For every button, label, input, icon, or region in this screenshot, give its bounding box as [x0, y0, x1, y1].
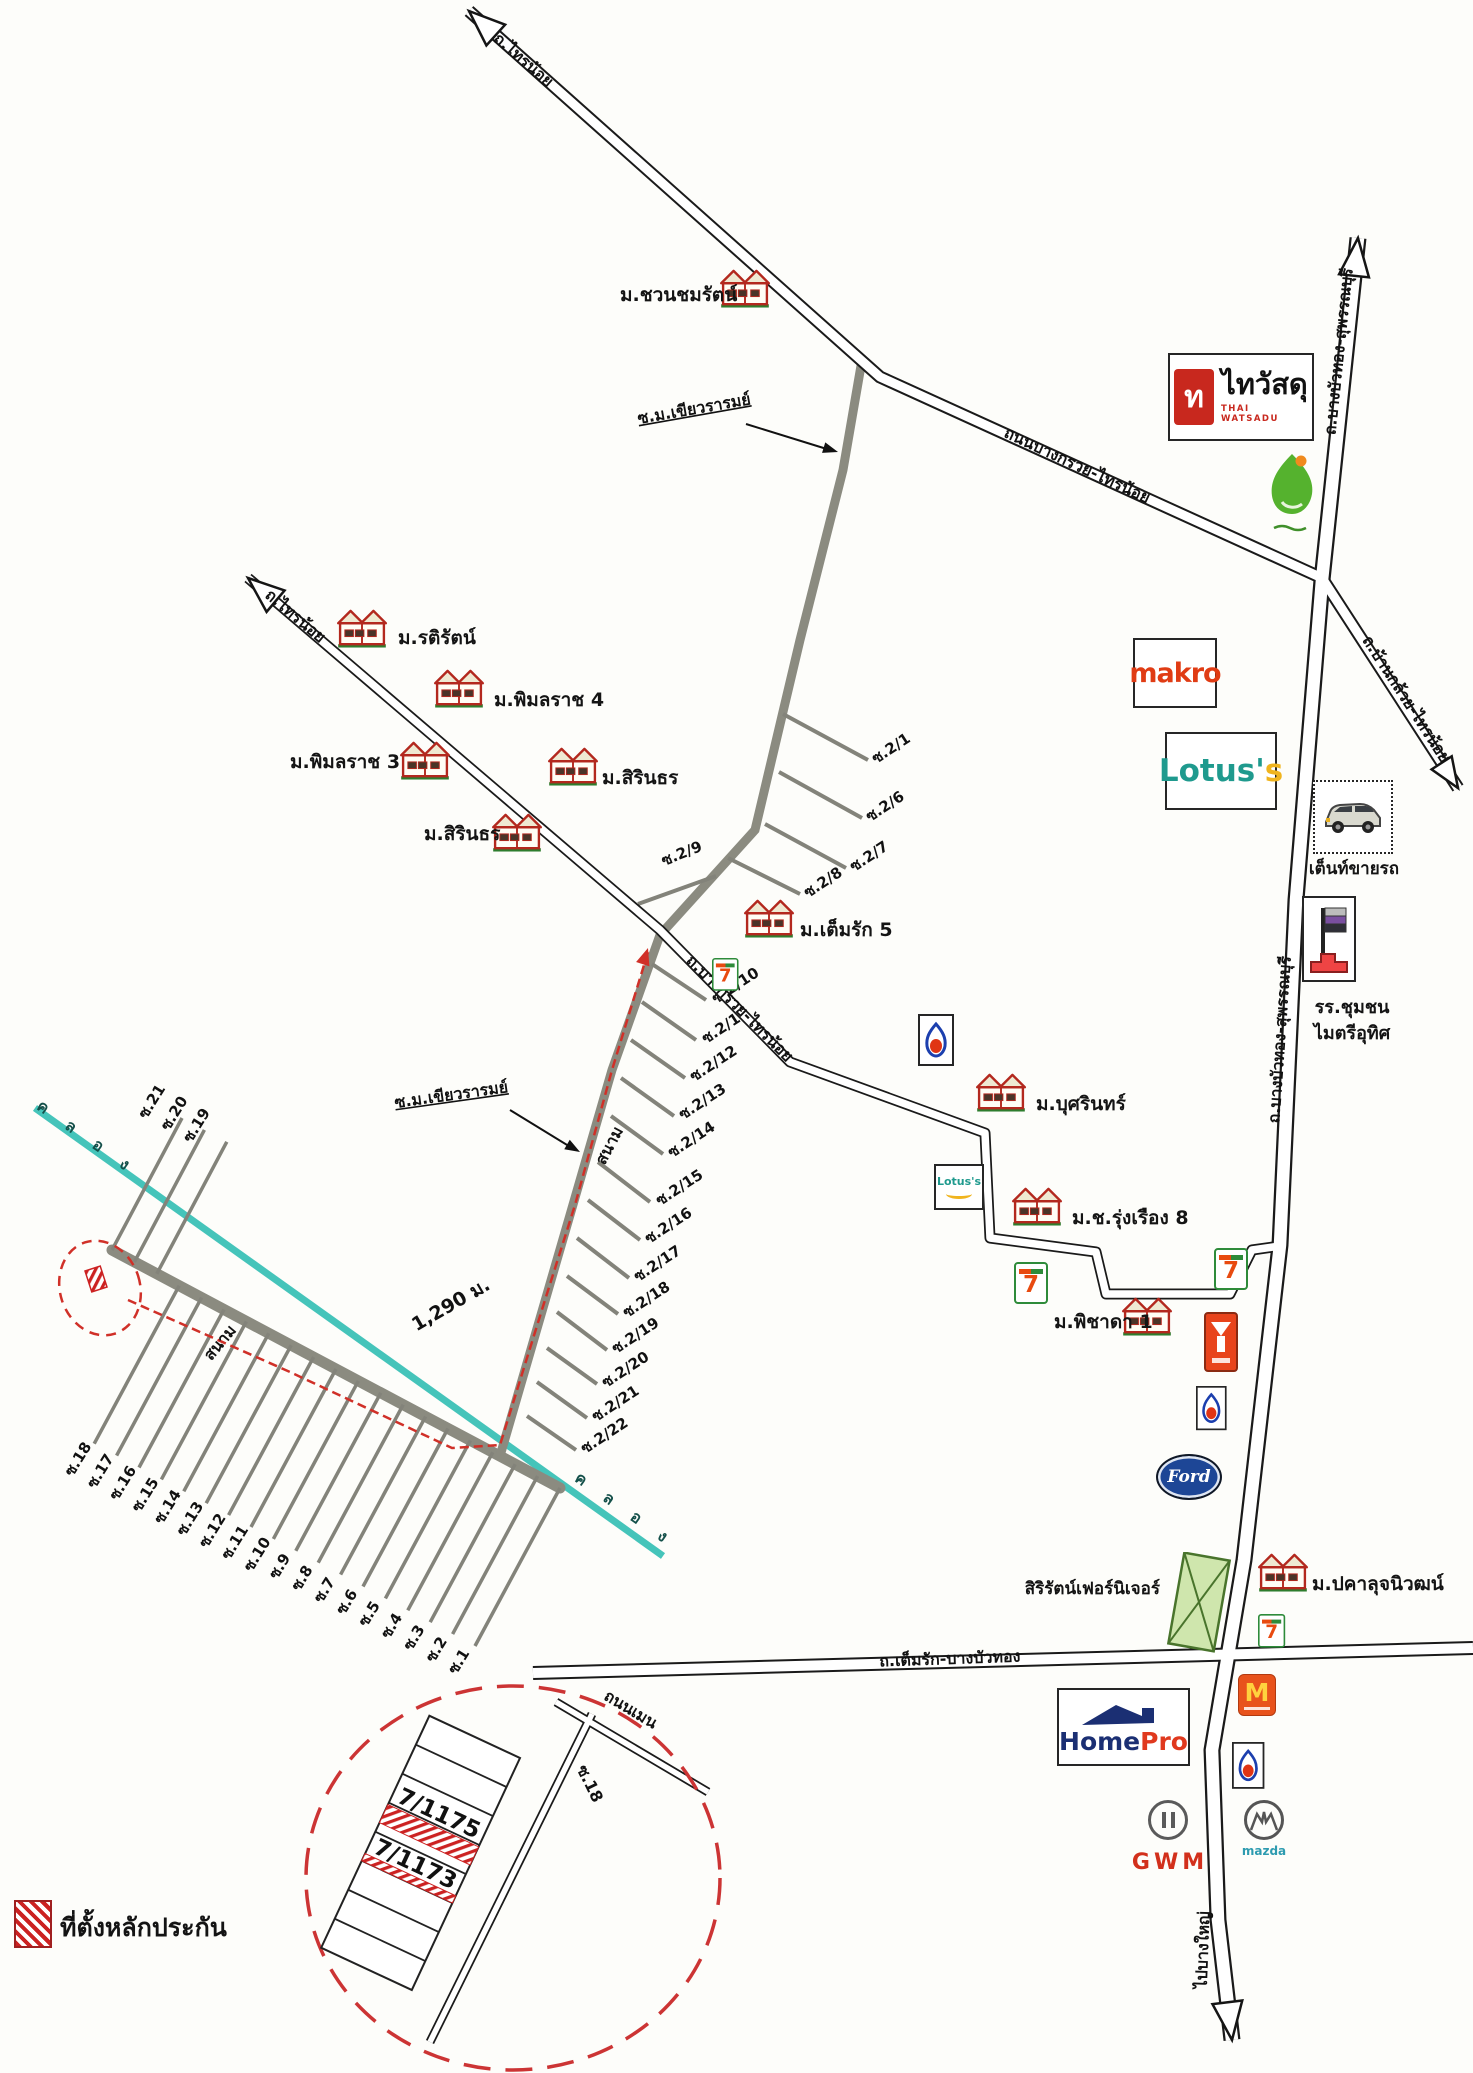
thai-watsadu-en-label: THAI WATSADU	[1221, 404, 1308, 424]
village-label: ม.รติรัตน์	[398, 628, 476, 650]
soi-label: ซ.2/16	[641, 1204, 695, 1248]
soi-label: ซ.2/1	[868, 729, 913, 767]
canal-label-2: ค ล อ ง	[572, 1468, 679, 1551]
soi-label: ซ.2/15	[652, 1166, 706, 1210]
soi-label: ซ.3	[399, 1622, 428, 1654]
soi-line	[642, 1002, 696, 1040]
school-label-line2: ไมตรีอุทิศ	[1296, 1024, 1408, 1045]
lotus-label-accent: s	[1265, 753, 1283, 789]
soi-label: ซ.9	[265, 1550, 294, 1582]
soi-label: ซ.2/13	[675, 1080, 729, 1124]
soi-label: ซ.2/18	[619, 1278, 673, 1322]
ptt-station-icon	[1232, 1742, 1264, 1789]
village-label: ม.เต็มรัก 5	[800, 920, 893, 942]
thai-watsadu-icon: ท	[1174, 369, 1214, 425]
village-label: ม.สิรินธร	[424, 824, 500, 846]
collateral-plot-icon	[85, 1266, 107, 1292]
gwm-label: GWM	[1128, 1850, 1212, 1875]
seven-eleven-icon: 7	[712, 958, 739, 991]
soi-label: ซ.8	[287, 1562, 316, 1594]
soi-label: ซ.2/9	[659, 837, 705, 870]
seven-eleven-number: 7	[1223, 1260, 1239, 1283]
soi-lines	[94, 714, 868, 1646]
village-house-icon	[549, 749, 597, 786]
map-stage: ซ.2/1ซ.2/6ซ.2/7ซ.2/8ซ.2/9ซ.2/10ซ.2/11ซ.2…	[0, 0, 1473, 2073]
soi-line	[577, 1238, 629, 1278]
mazda-emblem-icon	[1244, 1800, 1284, 1840]
village-house-icon	[435, 671, 483, 708]
soi-line	[547, 1348, 597, 1384]
soi-label: ซ.2/20	[598, 1348, 652, 1392]
makro-logo: makro	[1133, 638, 1217, 708]
school-box	[1302, 896, 1356, 982]
soi-label: ซ.2/6	[862, 787, 907, 825]
seven-eleven-number: 7	[1023, 1274, 1039, 1297]
school-flag-icon	[1308, 902, 1350, 976]
village-house-icon	[1013, 1189, 1061, 1226]
soi-label: ซ.2/12	[686, 1042, 740, 1086]
road-label-bangkruai-sainoi: ถนนบางกรวย-ไทรน้อย	[1001, 423, 1153, 507]
village-house-icon	[338, 611, 386, 648]
legend-hatch-swatch	[14, 1900, 52, 1948]
thai-watsadu-thai-label: ไทวัสดุ	[1221, 370, 1308, 399]
soi-line	[134, 1130, 204, 1262]
homepro-label-pro: Pro	[1140, 1727, 1188, 1756]
soi-label: ซ.2/7	[846, 837, 891, 875]
lotus-logo: Lotus's	[1165, 732, 1277, 810]
car-dealer-box	[1313, 780, 1393, 854]
homepro-roof-icon	[1072, 1701, 1176, 1727]
village-label: ม.สิรินธร	[602, 768, 678, 790]
soi-label: ซ.2/8	[800, 863, 845, 901]
village-label: ม.พิมลราช 4	[494, 690, 604, 712]
soi-label: ซ.2	[422, 1634, 451, 1666]
road-label-bankluai: ถ.บ้านกล้วย-ไทรน้อย	[1358, 632, 1454, 766]
soi-line	[112, 1118, 182, 1250]
village-house-icon	[1259, 1555, 1307, 1592]
ford-logo: Ford	[1156, 1454, 1222, 1500]
seven-eleven-number: 7	[719, 967, 731, 985]
soi-label: ซ.2/19	[608, 1314, 662, 1358]
soi-label: ซ.5	[355, 1598, 384, 1630]
soi-line	[728, 858, 800, 894]
village-label: ม.พิชาดา 1	[1054, 1312, 1153, 1334]
soi-line	[557, 1312, 607, 1350]
soi-line	[567, 1276, 618, 1314]
village-label: ม.ปคาลุจนิวฒน์	[1312, 1574, 1444, 1596]
road-label-to-bangyai: ไปบางใหญ่	[1192, 1911, 1215, 1991]
inset-road-label-main: ถนนเมน	[601, 1686, 661, 1732]
distance-label: 1,290 ม.	[408, 1274, 494, 1336]
seven-eleven-icon: 7	[1014, 1262, 1048, 1304]
ptt-station-icon	[918, 1014, 954, 1066]
ptt-station-icon	[1196, 1386, 1227, 1430]
road-label-r2: ถ.บางกรวย-ไทรน้อย	[683, 951, 798, 1066]
village-label: ม.บุศรินทร์	[1036, 1094, 1126, 1116]
soi-line	[779, 772, 862, 818]
canal-label-1: ค ล อ ง	[34, 1096, 141, 1179]
seven-eleven-icon: 7	[1214, 1248, 1248, 1290]
soi-line	[783, 714, 868, 760]
legend-label: ที่ตั้งหลักประกัน	[60, 1908, 227, 1948]
village-house-icon	[401, 743, 449, 780]
village-house-icon	[977, 1075, 1025, 1112]
soi-line	[631, 1040, 685, 1078]
homepro-logo: HomePro	[1057, 1688, 1190, 1766]
soi-label: ซ.7	[310, 1574, 339, 1606]
homepro-label-home: Home	[1059, 1727, 1140, 1756]
thai-watsadu-logo: ท ไทวัสดุ THAI WATSADU	[1168, 353, 1314, 441]
lotus-gofresh-logo: Lotus's	[934, 1164, 984, 1210]
fuel-station-icon	[1204, 1312, 1238, 1372]
soi-label: ซ.1	[444, 1645, 473, 1677]
green-leaf-logo	[1262, 448, 1322, 544]
soi-line	[588, 1200, 640, 1240]
inset-road-label-soi18: ซ.18	[573, 1762, 607, 1806]
ford-label: Ford	[1167, 1467, 1210, 1487]
lotus-gofresh-wave-icon	[946, 1189, 972, 1199]
school-label-line1: รร.ชุมชน	[1296, 998, 1408, 1019]
soi-line	[157, 1142, 227, 1274]
lotus-label-main: Lotus'	[1159, 753, 1265, 789]
village-label: ม.พิมลราช 3	[290, 752, 400, 774]
soi-line	[537, 1382, 587, 1418]
furniture-store-building	[1164, 1552, 1240, 1664]
road-label-sai-noi-r2: ถ.ไทรน้อย	[262, 585, 330, 646]
soi-khiao-label-2: ซ.ม.เขียวรารมย์	[393, 1077, 509, 1112]
soi-line	[527, 1416, 576, 1450]
car-icon	[1321, 796, 1385, 838]
mazda-label: mazda	[1241, 1844, 1287, 1858]
car-dealer-label: เต็นท์ขายรถ	[1306, 860, 1402, 880]
furniture-store-label: สิริรัตน์เฟอร์นิเจอร์	[1012, 1580, 1160, 1600]
soi-line	[598, 1162, 650, 1202]
mcdonalds-arches-icon: M	[1245, 1680, 1270, 1705]
soi-khiao-label-1: ซ.ม.เขียวรารมย์	[636, 389, 752, 428]
soi-line	[765, 824, 846, 868]
gwm-emblem-icon	[1148, 1800, 1188, 1840]
village-label: ม.ช.รุ่งเรือง 8	[1072, 1208, 1189, 1230]
soi-labels: ซ.2/1ซ.2/6ซ.2/7ซ.2/8ซ.2/9ซ.2/10ซ.2/11ซ.2…	[61, 729, 914, 1677]
village-label: ม.ชวนชมรัตน์	[620, 285, 737, 307]
arrow-icon	[1212, 2000, 1246, 2041]
lotus-gofresh-label: Lotus's	[937, 1176, 981, 1187]
soi-label: ซ.4	[377, 1610, 406, 1642]
soi-label: ซ.6	[332, 1586, 361, 1618]
makro-label: makro	[1129, 658, 1220, 689]
seven-eleven-number: 7	[1265, 1624, 1278, 1642]
seven-eleven-icon: 7	[1258, 1614, 1285, 1648]
village-house-icon	[745, 901, 793, 938]
soi-label: ซ.2/14	[664, 1118, 718, 1162]
soi-label: ซ.2/17	[630, 1242, 684, 1286]
soi-line	[621, 1078, 674, 1116]
mcdonalds-logo: M	[1238, 1674, 1276, 1716]
road-label-sai-noi-r1: ถ.ไทรน้อย	[490, 29, 557, 91]
